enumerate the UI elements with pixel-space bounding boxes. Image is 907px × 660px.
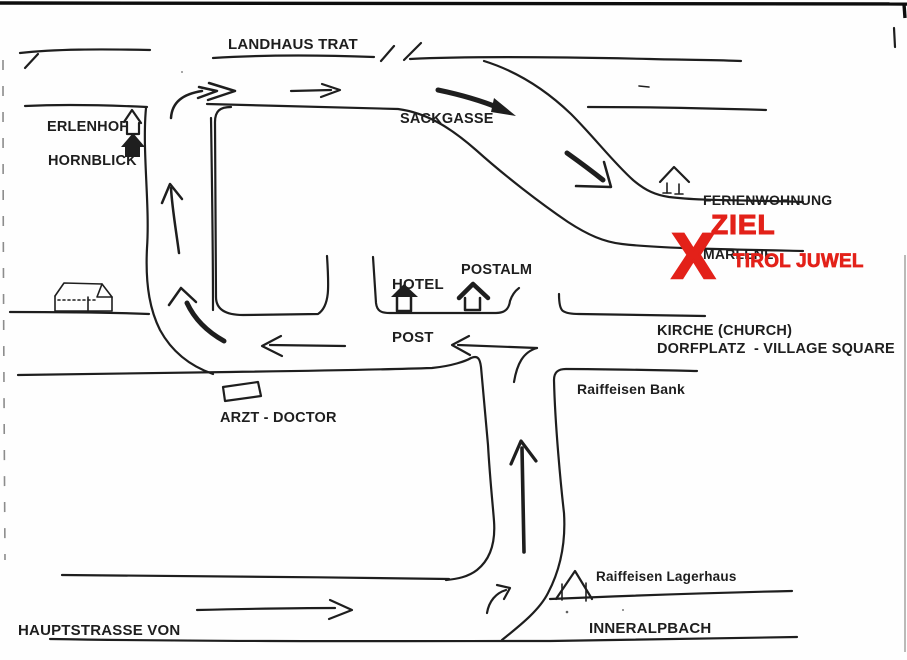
route-arrow-main-road-east bbox=[197, 600, 352, 619]
hand-drawn-directions-map: LANDHAUS TRAT ERLENHOF HORNBLICK SACKGAS… bbox=[0, 0, 907, 660]
destination-x-marker: X bbox=[672, 224, 715, 288]
label-ferienwohnung-line1: FERIENWOHNUNG bbox=[703, 191, 832, 209]
building-icons bbox=[55, 110, 689, 601]
doctor-office-rectangle bbox=[223, 382, 261, 401]
south-road-right-edge bbox=[502, 369, 697, 640]
label-sackgasse: SACKGASSE bbox=[400, 111, 494, 128]
route-arrows bbox=[162, 83, 611, 619]
route-arrow-street-up bbox=[162, 184, 182, 253]
label-inneralpbach: INNERALPBACH bbox=[589, 620, 711, 638]
label-kirche-church: KIRCHE (CHURCH) bbox=[657, 323, 792, 340]
label-arzt-doctor: ARZT - DOCTOR bbox=[220, 410, 337, 427]
center-block-outline bbox=[215, 107, 328, 315]
label-hauptstrasse-main-road: HAUPTSTRASSE VON REITH/BRIXLEGG MAIN ROA… bbox=[18, 583, 180, 660]
route-arrow-south-road-north bbox=[511, 441, 536, 552]
house-icon-ferienwohnung-marlene bbox=[660, 167, 689, 194]
route-arrow-turn-left-from-south-road bbox=[452, 336, 537, 382]
label-hauptstrasse-line1: HAUPTSTRASSE VON bbox=[18, 621, 180, 640]
route-arrow-turn-north-from-main-road bbox=[487, 585, 510, 613]
route-arrow-sackgasse-2 bbox=[567, 153, 611, 187]
label-hornblick: HORNBLICK bbox=[48, 153, 137, 170]
label-postalm: POSTALM bbox=[461, 262, 532, 279]
label-landhaus-trat: LANDHAUS TRAT bbox=[228, 36, 358, 54]
label-raiffeisen-bank: Raiffeisen Bank bbox=[577, 381, 685, 398]
village-street-left-edge bbox=[145, 108, 213, 374]
middle-road-bottom-edge bbox=[18, 357, 494, 580]
label-hotel-post-line2: POST bbox=[392, 329, 444, 347]
label-raiffeisen-lagerhaus: Raiffeisen Lagerhaus bbox=[596, 569, 737, 585]
route-arrow-turn-right-at-top bbox=[171, 83, 235, 118]
label-ziel: ZIEL bbox=[711, 208, 776, 242]
barn-icon bbox=[55, 283, 112, 311]
house-icon-raiffeisen-lagerhaus bbox=[556, 571, 592, 601]
house-icon-postalm bbox=[459, 284, 488, 310]
label-hotel-post-line1: HOTEL bbox=[392, 276, 444, 294]
label-dorfplatz-village-square: DORFPLATZ - VILLAGE SQUARE bbox=[657, 341, 895, 358]
label-tirol-juwel: TIROL JUWEL bbox=[733, 251, 864, 274]
label-erlenhof: ERLENHOF bbox=[47, 119, 128, 136]
top-road-top-edge-left bbox=[20, 49, 150, 53]
route-arrow-top-road-east bbox=[291, 84, 340, 97]
label-hotel-post: HOTEL POST bbox=[392, 241, 444, 381]
route-arrow-middle-road-west bbox=[262, 336, 345, 356]
